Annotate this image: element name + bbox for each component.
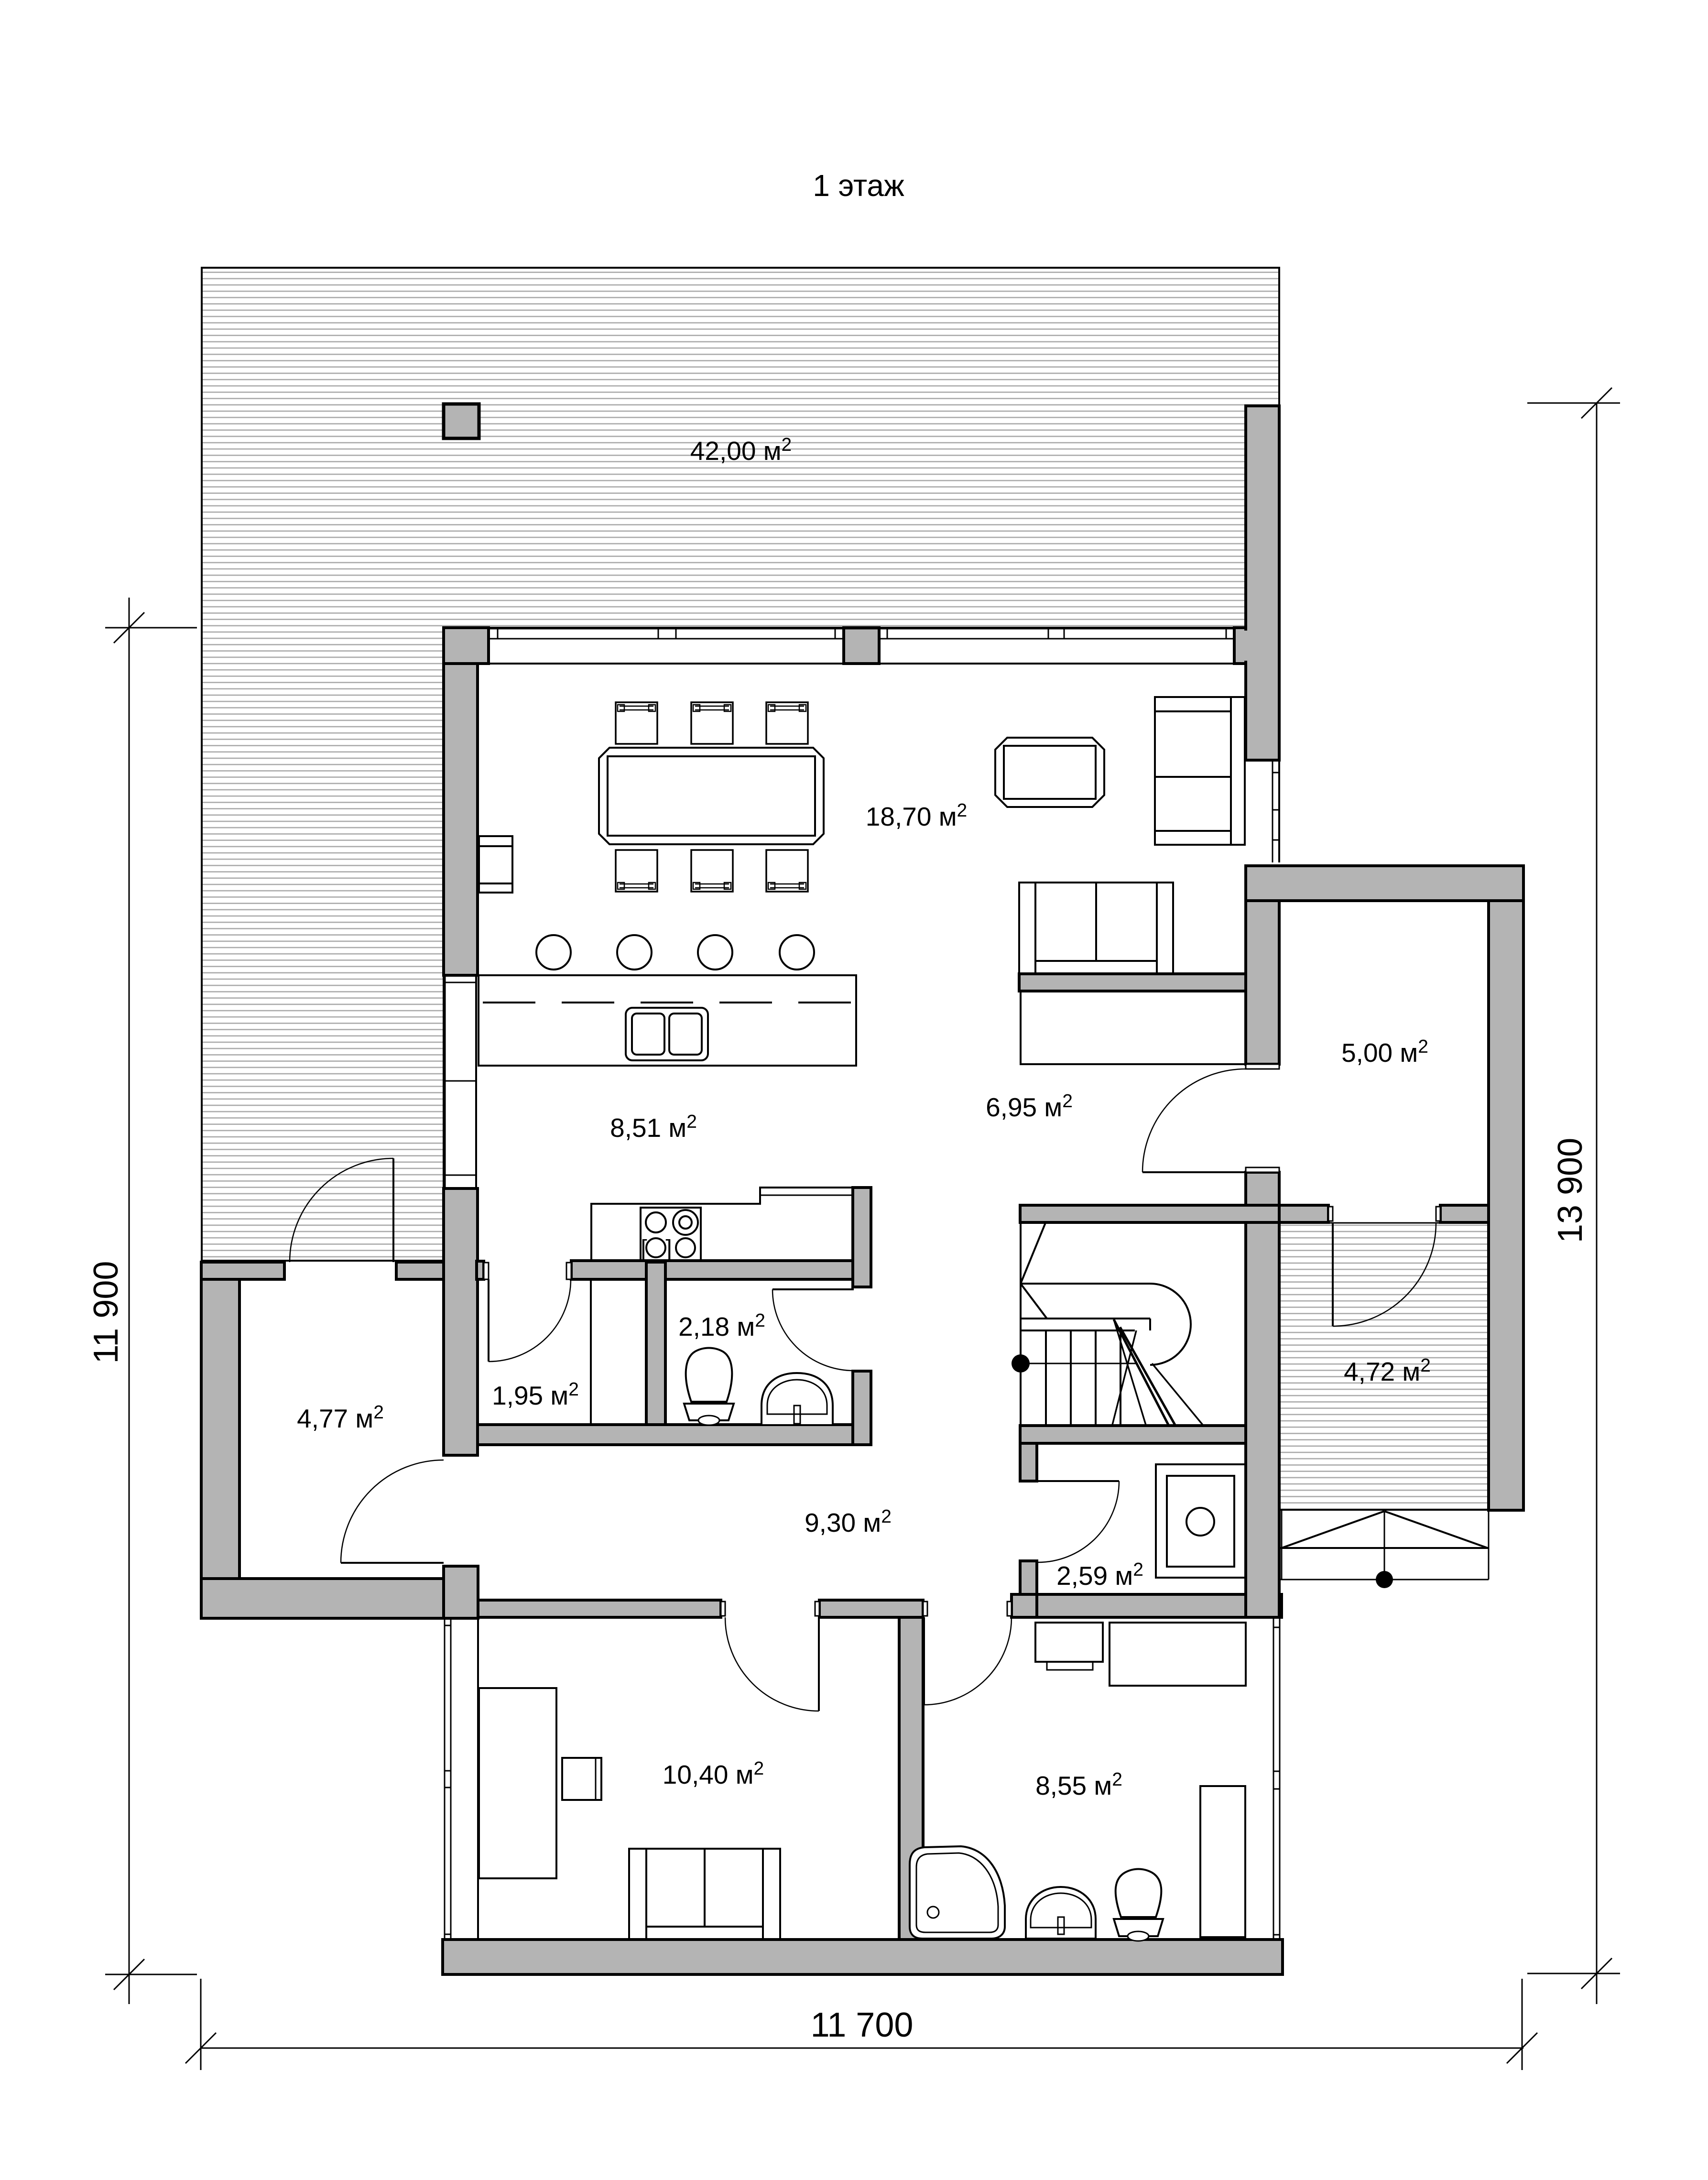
svg-text:5,00 м2: 5,00 м2 — [1341, 1036, 1428, 1068]
svg-text:8,51 м2: 8,51 м2 — [610, 1112, 697, 1143]
svg-text:[: [ — [641, 1236, 647, 1261]
svg-text:8,55 м2: 8,55 м2 — [1035, 1769, 1122, 1800]
svg-text:4,72 м2: 4,72 м2 — [1344, 1355, 1431, 1386]
svg-text:42,00 м2: 42,00 м2 — [690, 435, 792, 466]
svg-text:9,30 м2: 9,30 м2 — [805, 1506, 892, 1537]
svg-text:11 900: 11 900 — [87, 1261, 125, 1364]
svg-text:1 этаж: 1 этаж — [813, 168, 904, 203]
svg-text:1,95 м2: 1,95 м2 — [492, 1379, 579, 1410]
svg-text:2,18 м2: 2,18 м2 — [678, 1310, 765, 1341]
svg-text:]: ] — [665, 1236, 672, 1261]
svg-text:10,40 м2: 10,40 м2 — [663, 1758, 764, 1789]
svg-text:2,59 м2: 2,59 м2 — [1056, 1559, 1143, 1591]
svg-text:13 900: 13 900 — [1551, 1138, 1589, 1243]
svg-text:18,70 м2: 18,70 м2 — [866, 800, 967, 831]
svg-text:11 700: 11 700 — [811, 2006, 914, 2044]
svg-text:4,77 м2: 4,77 м2 — [297, 1402, 384, 1433]
svg-text:6,95 м2: 6,95 м2 — [986, 1091, 1073, 1122]
